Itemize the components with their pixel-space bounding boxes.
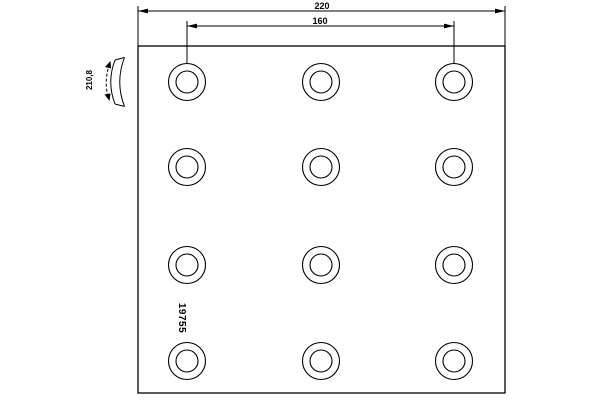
arrowhead-left-icon — [138, 9, 148, 14]
overall-width-value: 220 — [314, 1, 329, 11]
profile-top-edge — [115, 58, 125, 61]
brake-lining-drawing: 220 160 210,8 19755 — [0, 0, 600, 400]
lining-plate-outline — [138, 46, 505, 393]
arrowhead-right-icon — [444, 24, 454, 29]
arrowhead-left-icon — [187, 24, 197, 29]
radius-dimension-arc — [106, 64, 109, 98]
radius-arrow-top-icon — [105, 61, 111, 69]
lining-profile-icon: 210,8 — [85, 58, 125, 107]
lining-radius-label: 210,8 — [85, 69, 94, 90]
profile-inner-arc — [111, 60, 115, 104]
hole-group-width-value: 160 — [312, 16, 327, 26]
radius-arrow-bottom-icon — [105, 94, 111, 102]
part-number-label: 19755 — [176, 303, 187, 333]
profile-bottom-edge — [115, 104, 125, 107]
drawing-canvas: 220 160 210,8 19755 — [0, 0, 600, 400]
profile-outer-arc — [120, 58, 125, 107]
arrowhead-right-icon — [495, 9, 505, 14]
